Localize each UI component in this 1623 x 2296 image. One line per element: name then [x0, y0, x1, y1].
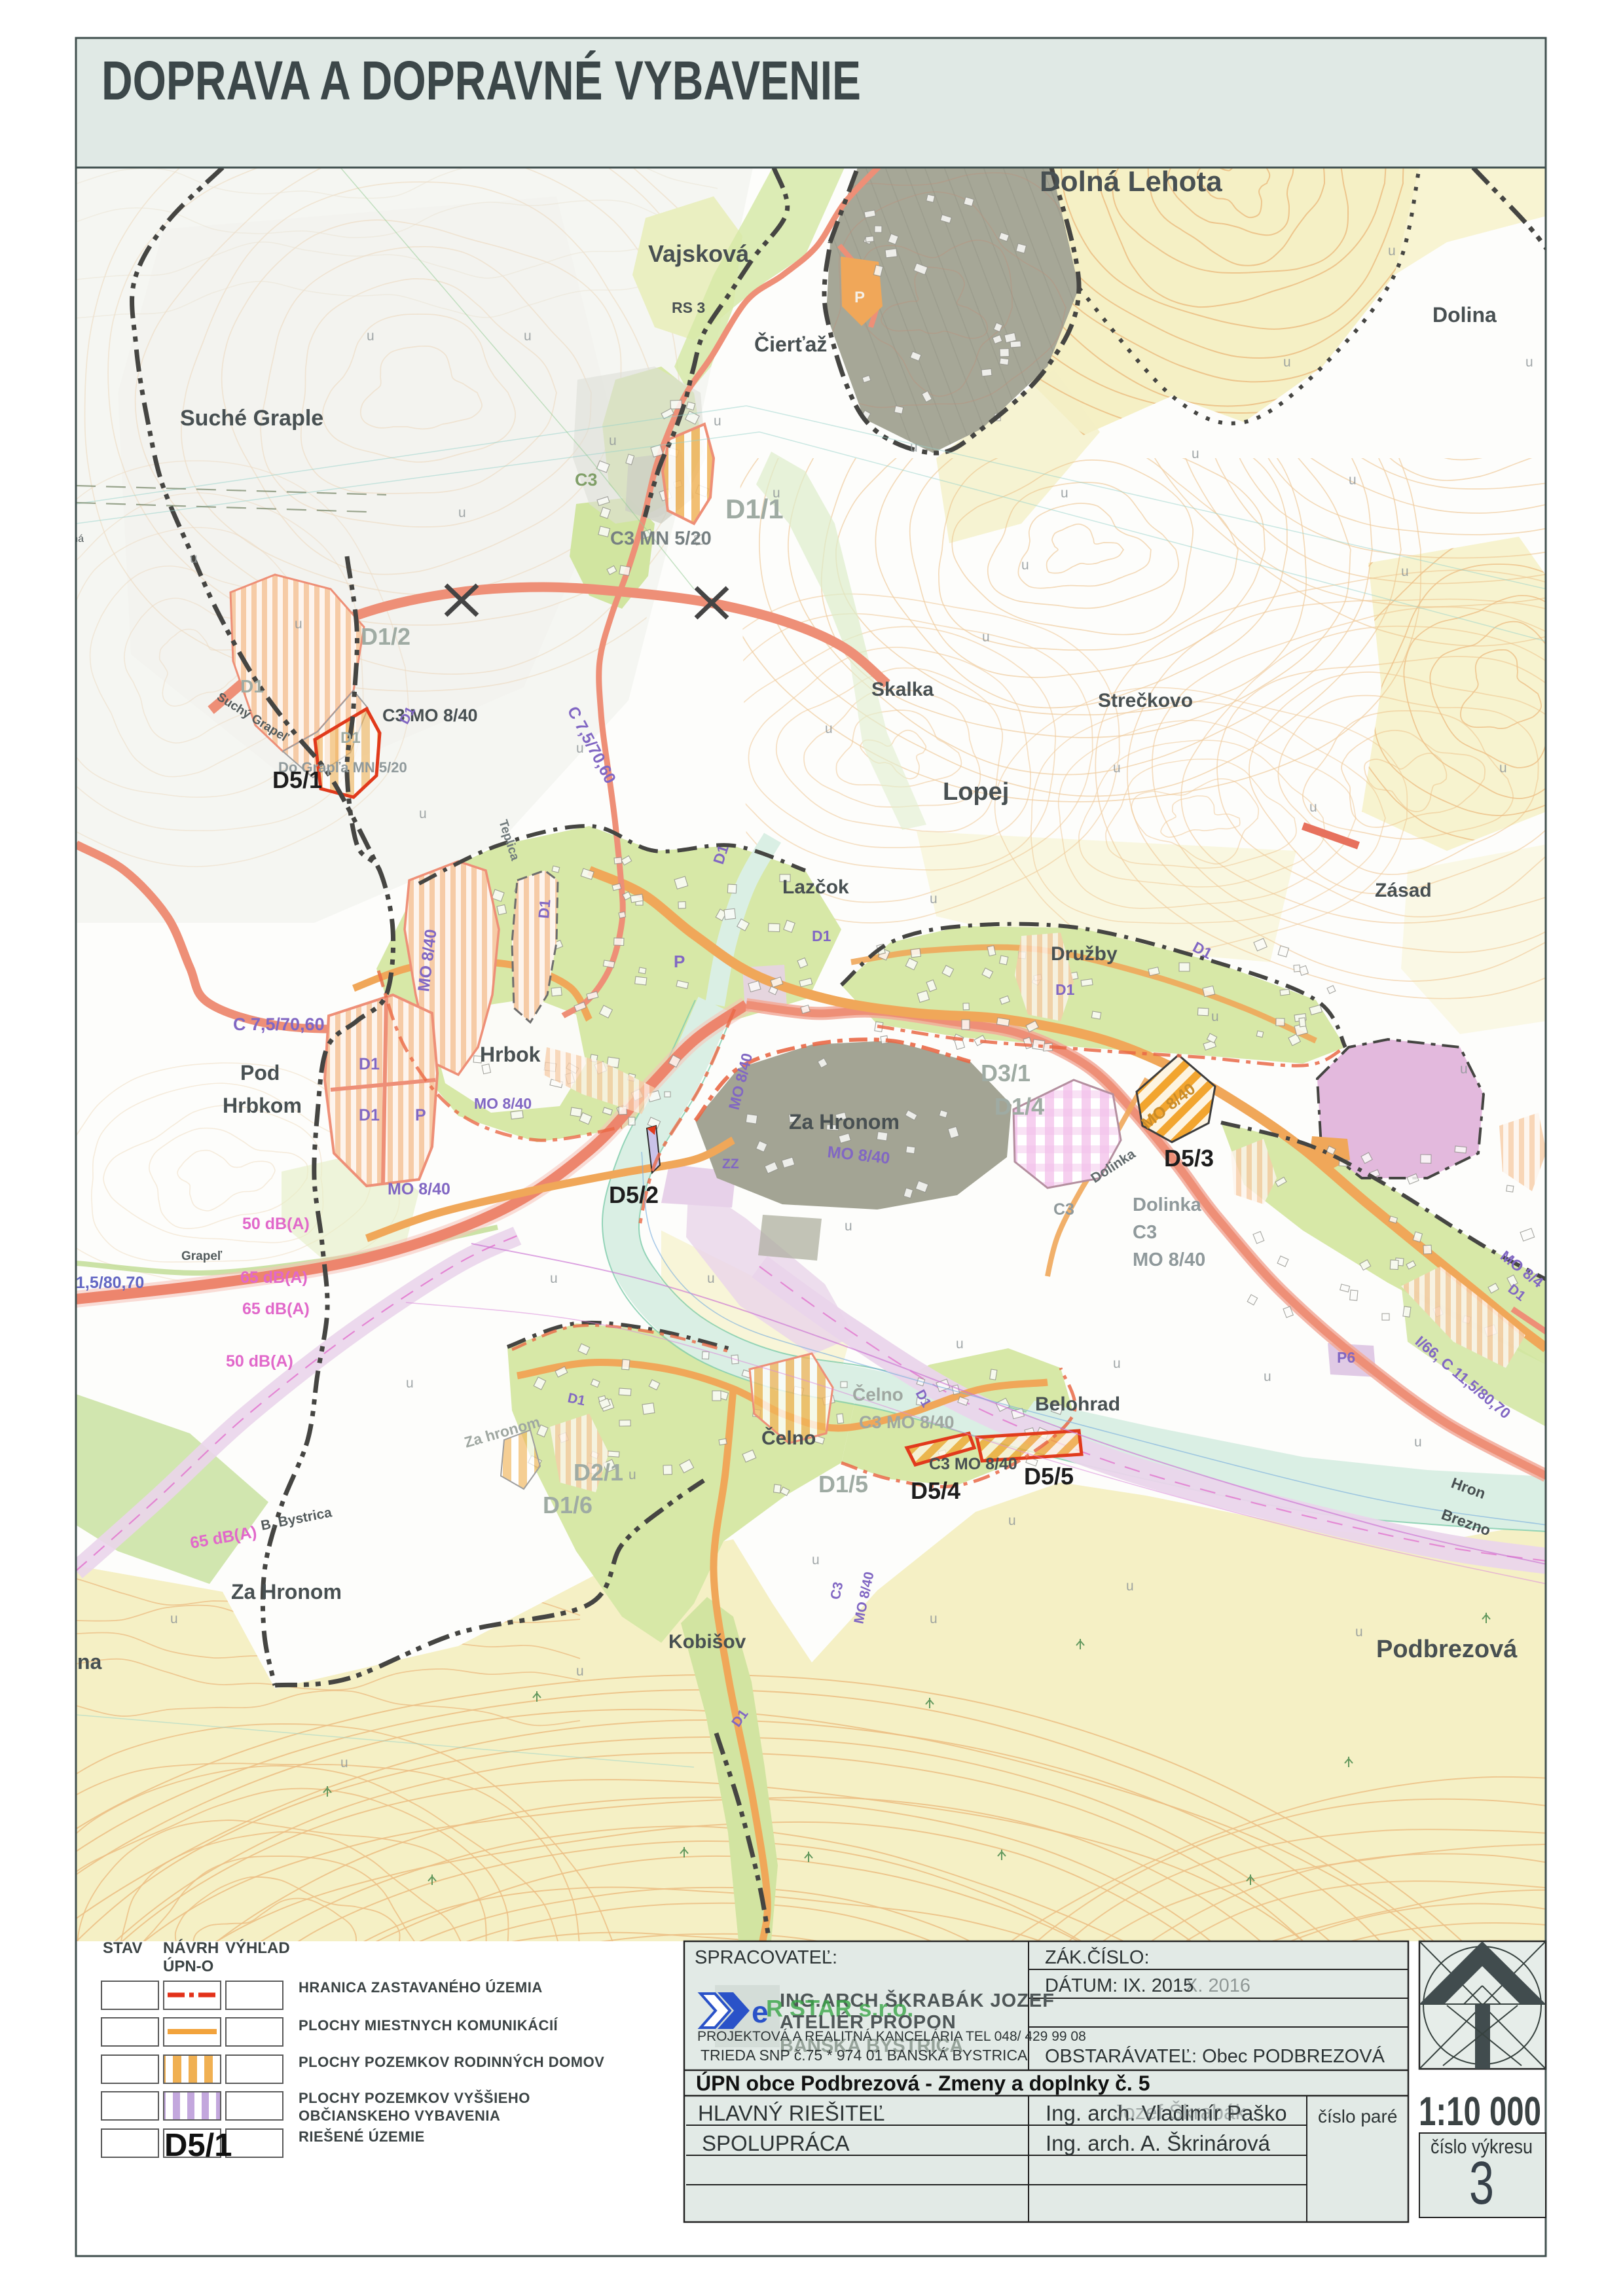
svg-text:NÁVRH: NÁVRH: [163, 1939, 219, 1957]
svg-text:D5/1: D5/1: [164, 2128, 232, 2163]
svg-text:3: 3: [1469, 2149, 1494, 2217]
svg-text:SPRACOVATEĽ:: SPRACOVATEĽ:: [695, 1947, 837, 1968]
svg-text:Jozef Škrabák: Jozef Škrabák: [1113, 2100, 1247, 2124]
svg-text:SPOLUPRÁCA: SPOLUPRÁCA: [702, 2131, 850, 2155]
svg-text:X. 2016: X. 2016: [1185, 1975, 1250, 1996]
svg-text:PLOCHY POZEMKOV VYŠŠIEHO: PLOCHY POZEMKOV VYŠŠIEHO: [299, 2090, 530, 2106]
svg-text:ÚPN obce Podbrezová - Zmeny a: ÚPN obce Podbrezová - Zmeny a doplnky č.…: [696, 2072, 1150, 2095]
svg-text:TRIEDA SNP č.75 * 974 01 BANS: TRIEDA SNP č.75 * 974 01 BANSKÁ BYSTRICA: [701, 2047, 1028, 2064]
svg-text:1:10 000: 1:10 000: [1419, 2089, 1541, 2134]
svg-text:STAV: STAV: [103, 1939, 142, 1957]
svg-text:HRANICA ZASTAVANÉHO ÚZEMIA: HRANICA ZASTAVANÉHO ÚZEMIA: [299, 1979, 543, 1996]
svg-text:Ing. arch. A. Škrinárová: Ing. arch. A. Škrinárová: [1046, 2131, 1271, 2155]
svg-text:PROJEKTOVÁ A REALITNÁ KANCELÁR: PROJEKTOVÁ A REALITNÁ KANCELÁRIA TEL 048…: [697, 2029, 1086, 2044]
svg-text:HLAVNÝ RIEŠITEĽ: HLAVNÝ RIEŠITEĽ: [698, 2101, 884, 2125]
svg-text:PLOCHY MIESTNYCH KOMUNIKÁCIÍ: PLOCHY MIESTNYCH KOMUNIKÁCIÍ: [299, 2017, 558, 2034]
svg-text:VÝHĽAD: VÝHĽAD: [225, 1939, 290, 1957]
svg-text:ZÁK.ČÍSLO:: ZÁK.ČÍSLO:: [1045, 1946, 1150, 1968]
svg-text:DÁTUM: IX. 2015: DÁTUM: IX. 2015: [1045, 1975, 1194, 1996]
svg-text:číslo paré: číslo paré: [1318, 2106, 1397, 2126]
svg-text:DOPRAVA A DOPRAVNÉ VYBAVENIE: DOPRAVA A DOPRAVNÉ VYBAVENIE: [101, 50, 861, 111]
svg-text:ÚPN-O: ÚPN-O: [163, 1957, 213, 1975]
svg-text:OBČIANSKEHO VYBAVENIA: OBČIANSKEHO VYBAVENIA: [299, 2108, 500, 2124]
svg-text:OBSTARÁVATEĽ: Obec PODBREZOVÁ: OBSTARÁVATEĽ: Obec PODBREZOVÁ: [1045, 2045, 1385, 2067]
svg-text:PLOCHY POZEMKOV RODINNÝCH DOMO: PLOCHY POZEMKOV RODINNÝCH DOMOV: [299, 2054, 604, 2070]
svg-text:RIEŠENÉ ÚZEMIE: RIEŠENÉ ÚZEMIE: [299, 2128, 425, 2145]
